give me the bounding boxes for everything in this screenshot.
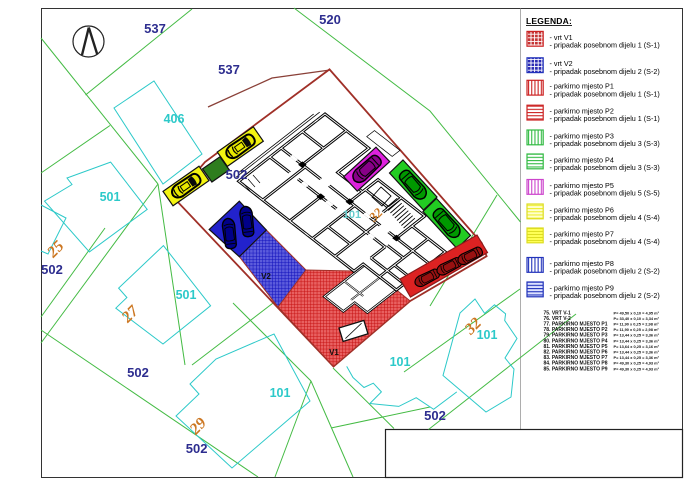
svg-text:502: 502	[127, 365, 149, 380]
svg-text:P= 13,44 x 0,25 = 3,36 m²: P= 13,44 x 0,25 = 3,36 m²	[614, 350, 660, 355]
svg-text:501: 501	[100, 190, 121, 204]
svg-text:P= 49,30 x 0,25 = 4,93 m²: P= 49,30 x 0,25 = 4,93 m²	[614, 361, 660, 366]
svg-text:P= 13,64 x 0,25 = 3,16 m²: P= 13,64 x 0,25 = 3,16 m²	[614, 344, 660, 349]
svg-text:- pripadak posebnom dijelu 3 (: - pripadak posebnom dijelu 3 (S-3)	[550, 163, 660, 172]
svg-text:P= 49,50 x 0,10 = 4,95 m²: P= 49,50 x 0,10 = 4,95 m²	[614, 310, 660, 315]
svg-text:520: 520	[319, 12, 341, 27]
svg-text:- pripadak posebnom dijelu 1 (: - pripadak posebnom dijelu 1 (S-1)	[550, 40, 660, 49]
svg-text:- pripadak posebnom dijelu 1 (: - pripadak posebnom dijelu 1 (S-1)	[550, 89, 660, 98]
svg-text:- pripadak posebnom dijelu 2 (: - pripadak posebnom dijelu 2 (S-2)	[550, 267, 660, 276]
svg-text:- pripadak posebnom dijelu 4 (: - pripadak posebnom dijelu 4 (S-4)	[550, 213, 660, 222]
svg-text:85. PARKIRNO MJESTO P9: 85. PARKIRNO MJESTO P9	[544, 366, 608, 372]
svg-text:502: 502	[186, 441, 208, 456]
svg-text:- pripadak posebnom dijelu 5 (: - pripadak posebnom dijelu 5 (S-5)	[550, 189, 660, 198]
svg-text:537: 537	[218, 62, 240, 77]
svg-text:P= 13,44 x 0,25 = 3,36 m²: P= 13,44 x 0,25 = 3,36 m²	[614, 333, 660, 338]
svg-text:LEGENDA:: LEGENDA:	[526, 16, 572, 26]
svg-text:P= 11,90 x 0,25 = 2,98 m²: P= 11,90 x 0,25 = 2,98 m²	[614, 322, 660, 327]
svg-text:P= 49,30 x 0,25 = 4,93 m²: P= 49,30 x 0,25 = 4,93 m²	[614, 366, 660, 371]
svg-text:537: 537	[144, 21, 166, 36]
svg-text:- pripadak posebnom dijelu 2 (: - pripadak posebnom dijelu 2 (S-2)	[550, 291, 660, 300]
svg-text:- pripadak posebnom dijelu 1 (: - pripadak posebnom dijelu 1 (S-1)	[550, 114, 660, 123]
svg-text:P= 11,90 x 0,25 = 2,98 m²: P= 11,90 x 0,25 = 2,98 m²	[614, 327, 660, 332]
svg-text:V2: V2	[261, 272, 271, 281]
svg-text:406: 406	[164, 112, 185, 126]
svg-text:P= 13,44 x 0,25 = 3,36 m²: P= 13,44 x 0,25 = 3,36 m²	[614, 355, 660, 360]
svg-text:V1: V1	[329, 348, 339, 357]
svg-text:502: 502	[424, 408, 446, 423]
svg-text:101: 101	[390, 355, 411, 369]
svg-text:502: 502	[41, 262, 63, 277]
svg-text:101: 101	[343, 209, 361, 221]
svg-text:101: 101	[477, 328, 498, 342]
svg-text:P= 13,44 x 0,25 = 3,36 m²: P= 13,44 x 0,25 = 3,36 m²	[614, 338, 660, 343]
svg-text:101: 101	[270, 386, 291, 400]
svg-text:501: 501	[176, 288, 197, 302]
svg-text:- pripadak posebnom dijelu 2 (: - pripadak posebnom dijelu 2 (S-2)	[550, 67, 660, 76]
svg-text:502: 502	[226, 167, 248, 182]
svg-text:- pripadak posebnom dijelu 4 (: - pripadak posebnom dijelu 4 (S-4)	[550, 237, 660, 246]
svg-text:- pripadak posebnom dijelu 3 (: - pripadak posebnom dijelu 3 (S-3)	[550, 139, 660, 148]
svg-text:P= 33,40 x 0,10 = 3,34 m²: P= 33,40 x 0,10 = 3,34 m²	[614, 316, 660, 321]
